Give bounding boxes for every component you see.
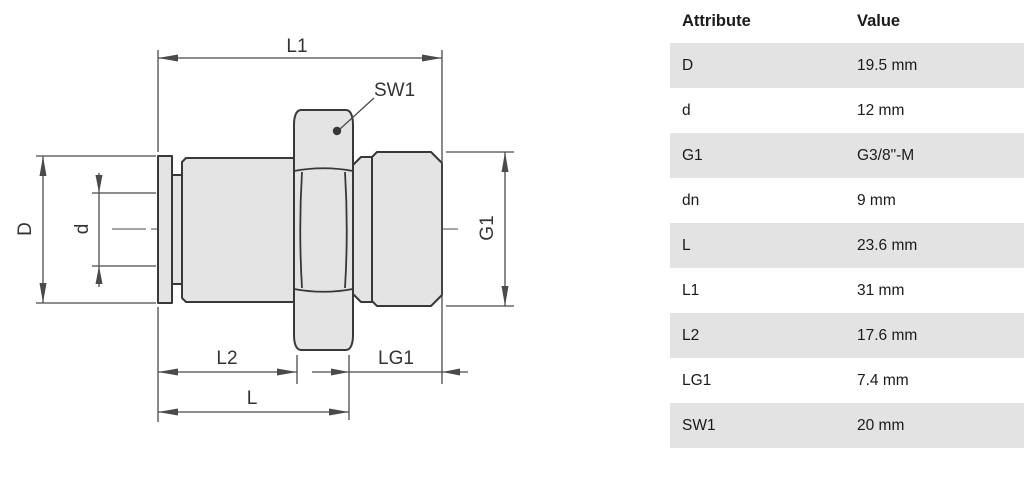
value-cell: 12 mm: [857, 102, 904, 120]
fitting-diagram: L1 SW1 D d G1 L2 LG1 L: [0, 0, 660, 472]
value-cell: 20 mm: [857, 417, 904, 435]
table-row: SW1 20 mm: [670, 403, 1024, 448]
value-cell: 9 mm: [857, 192, 896, 210]
table-row: G1 G3/8"-M: [670, 133, 1024, 178]
attribute-cell: LG1: [682, 372, 857, 390]
threaded-stud: [372, 152, 442, 306]
value-cell: 17.6 mm: [857, 327, 917, 345]
dim-label-d-inner: d: [72, 224, 93, 235]
arrowhead: [96, 175, 103, 193]
value-cell: 7.4 mm: [857, 372, 909, 390]
arrowhead: [158, 369, 178, 376]
table-row: LG1 7.4 mm: [670, 358, 1024, 403]
table-row: D 19.5 mm: [670, 43, 1024, 88]
attributes-table: Attribute Value D 19.5 mm d 12 mm G1 G3/…: [660, 0, 1024, 472]
arrowhead: [158, 409, 178, 416]
attribute-cell: L: [682, 237, 857, 255]
arrowhead: [502, 152, 509, 172]
dim-label-d-outer: D: [15, 222, 36, 236]
technical-drawing: L1 SW1 D d G1 L2 LG1 L: [0, 0, 660, 472]
body-cylinder: [182, 158, 294, 302]
dim-label-l2: L2: [216, 348, 237, 369]
arrowhead: [40, 283, 47, 303]
value-cell: 19.5 mm: [857, 57, 917, 75]
value-cell: 31 mm: [857, 282, 904, 300]
value-cell: G3/8"-M: [857, 147, 914, 165]
attribute-cell: L2: [682, 327, 857, 345]
arrowhead: [502, 286, 509, 306]
dim-label-l: L: [247, 388, 258, 409]
value-header: Value: [857, 12, 900, 31]
attribute-cell: G1: [682, 147, 857, 165]
arrowhead: [158, 55, 178, 62]
attribute-header: Attribute: [682, 12, 857, 31]
attribute-cell: d: [682, 102, 857, 120]
value-cell: 23.6 mm: [857, 237, 917, 255]
thread-collar: [353, 157, 372, 302]
table-row: L2 17.6 mm: [670, 313, 1024, 358]
table-body: D 19.5 mm d 12 mm G1 G3/8"-M dn 9 mm L 2…: [660, 43, 1024, 448]
table-header-row: Attribute Value: [660, 0, 1024, 43]
hex-nut: [294, 110, 353, 350]
table-row: L1 31 mm: [670, 268, 1024, 313]
dim-label-sw1: SW1: [374, 80, 415, 101]
dim-label-lg1: LG1: [378, 348, 414, 369]
neck-groove: [172, 175, 182, 284]
dim-label-l1: L1: [286, 36, 307, 57]
attribute-cell: L1: [682, 282, 857, 300]
table-row: dn 9 mm: [670, 178, 1024, 223]
arrowhead: [422, 55, 442, 62]
attribute-cell: SW1: [682, 417, 857, 435]
arrowhead: [277, 369, 297, 376]
arrowhead: [329, 409, 349, 416]
table-row: L 23.6 mm: [670, 223, 1024, 268]
arrowhead: [40, 156, 47, 176]
attribute-cell: D: [682, 57, 857, 75]
attribute-cell: dn: [682, 192, 857, 210]
arrowhead: [442, 369, 460, 376]
arrowhead: [331, 369, 349, 376]
table-row: d 12 mm: [670, 88, 1024, 133]
arrowhead: [96, 266, 103, 284]
leader-dot: [333, 127, 341, 135]
release-flange: [158, 156, 172, 303]
dim-label-g1: G1: [477, 215, 498, 240]
